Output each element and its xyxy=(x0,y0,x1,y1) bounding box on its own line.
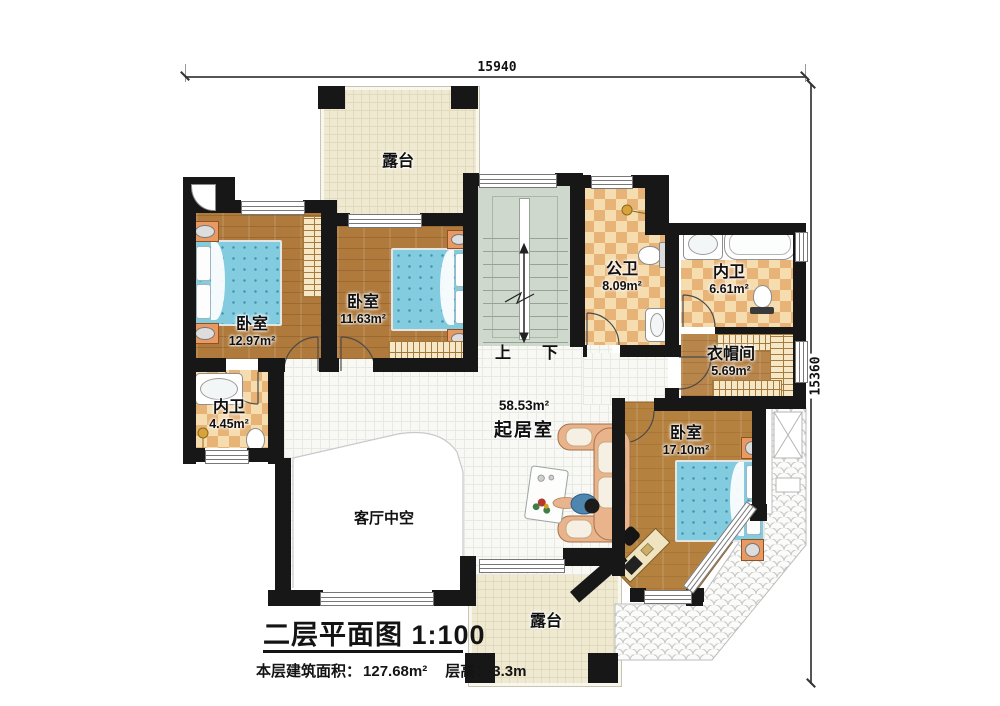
title-underline xyxy=(263,650,463,653)
stair-up-label: 上 xyxy=(495,339,511,363)
wall-segment xyxy=(183,358,226,372)
wall-segment xyxy=(665,235,679,345)
window xyxy=(320,592,434,606)
dimension-extension-left xyxy=(185,64,186,82)
subtitle-area-value: 127.68m² xyxy=(363,663,427,680)
room-label-terrace-top: 露台 xyxy=(382,152,414,171)
stair-down-label: 下 xyxy=(542,339,558,363)
room-label-cloakroom: 衣帽间 5.69m² xyxy=(707,345,755,379)
wall-segment xyxy=(319,358,339,372)
room-label-bath-inner-right: 内卫 6.61m² xyxy=(709,263,749,297)
wall-segment xyxy=(463,173,478,372)
window xyxy=(479,559,565,573)
wall-segment xyxy=(583,175,591,188)
wall-segment xyxy=(570,175,585,347)
plan-title: 二层平面图 1:100 xyxy=(263,613,486,652)
wall-segment xyxy=(588,653,618,683)
window xyxy=(591,176,633,189)
stair-stringer xyxy=(519,198,530,340)
dimension-line-top xyxy=(185,76,806,78)
room-label-bath-inner-left: 内卫 4.45m² xyxy=(209,398,249,432)
room-label-bedroom-left: 卧室 12.97m² xyxy=(229,315,276,349)
wall-segment xyxy=(318,86,345,109)
wall-segment xyxy=(752,398,766,516)
window xyxy=(795,232,808,262)
toilet-bath-inner-right xyxy=(750,284,774,316)
blanket-fold xyxy=(440,250,454,325)
wall-segment xyxy=(451,86,478,109)
pillow xyxy=(196,284,211,319)
wall-segment xyxy=(183,448,205,462)
wall-segment xyxy=(715,327,793,334)
wall-segment xyxy=(681,396,806,409)
window xyxy=(348,214,422,228)
wall-segment xyxy=(373,358,475,372)
wall-segment xyxy=(620,345,681,357)
window xyxy=(479,174,557,188)
window xyxy=(205,450,249,464)
wall-segment xyxy=(673,223,805,235)
window xyxy=(644,590,692,604)
room-label-bedroom-right: 卧室 17.10m² xyxy=(663,424,710,458)
wall-segment xyxy=(321,200,337,372)
wall-segment xyxy=(460,556,476,606)
pillow xyxy=(196,246,211,281)
room-label-bedroom-mid: 卧室 11.63m² xyxy=(340,293,386,327)
wall-segment xyxy=(268,590,323,606)
room-label-void: 客厅中空 xyxy=(354,510,414,528)
subtitle-height-label: 层高： xyxy=(445,663,490,680)
dimension-height-label: 15360 xyxy=(809,353,824,398)
room-label-bath-public: 公卫 8.09m² xyxy=(602,260,642,294)
wall-segment xyxy=(463,173,479,186)
wall-segment xyxy=(275,458,291,604)
nightstand xyxy=(741,539,764,561)
dimension-width-label: 15940 xyxy=(474,60,519,75)
roof-vent xyxy=(776,478,800,492)
subtitle-area-label: 本层建筑面积： xyxy=(256,663,361,680)
room-label-living: 58.53m² 起居室 xyxy=(494,398,554,442)
room-label-terrace-bottom: 露台 xyxy=(530,612,562,631)
roof-skylight-cross xyxy=(774,412,802,458)
wall-segment xyxy=(583,345,587,357)
window xyxy=(241,201,305,215)
wall-segment xyxy=(183,177,196,464)
plan-subtitle: 本层建筑面积：127.68m²层高：3.3m xyxy=(256,660,528,681)
floor-plan-canvas: 15940 15360 xyxy=(0,0,1000,706)
window xyxy=(795,341,808,383)
subtitle-height-value: 3.3m xyxy=(492,663,526,680)
roof-skylight xyxy=(774,412,802,458)
